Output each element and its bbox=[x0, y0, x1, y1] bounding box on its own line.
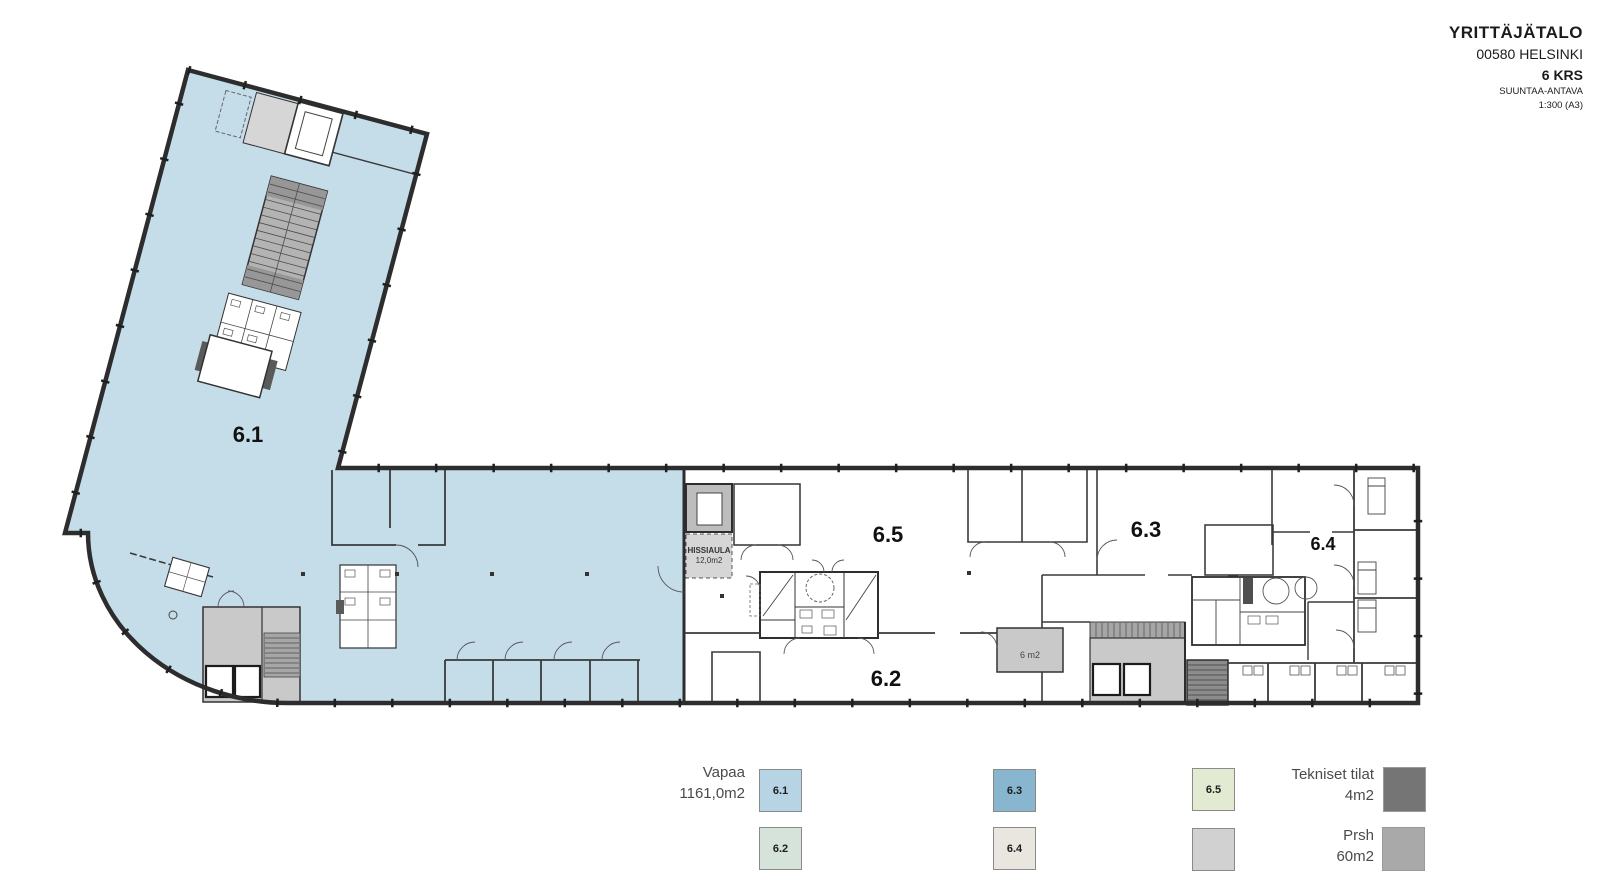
hissiaula-area: 12,0m2 bbox=[696, 556, 723, 565]
legend-prsh-label: Prsh bbox=[1240, 825, 1374, 846]
legend-swatch-tekniset bbox=[1383, 767, 1426, 812]
legend-tekniset-label: Tekniset tilat bbox=[1240, 764, 1374, 785]
hissiaula-label: HISSIAULA bbox=[687, 546, 730, 555]
duct-dark bbox=[1243, 578, 1253, 604]
meeting-room-63 bbox=[1205, 525, 1273, 575]
legend-prsh: Prsh 60m2 bbox=[1240, 825, 1374, 867]
area-label-65: 6.5 bbox=[873, 522, 904, 547]
plan-scale: 1:300 (A3) bbox=[1449, 99, 1583, 112]
legend-swatch-61: 6.1 bbox=[759, 769, 802, 812]
area-label-61: 6.1 bbox=[233, 422, 264, 447]
legend-tekniset: Tekniset tilat 4m2 bbox=[1240, 764, 1374, 806]
east-stair-run bbox=[1090, 622, 1185, 638]
legend-vapaa-label: Vapaa bbox=[600, 762, 745, 783]
legend-swatch-65-label: 6.5 bbox=[1206, 784, 1221, 796]
area-label-62: 6.2 bbox=[871, 666, 902, 691]
legend-swatch-65: 6.5 bbox=[1192, 768, 1235, 811]
hissiaula-elevator-car bbox=[697, 493, 722, 525]
elevator-shaft bbox=[1124, 664, 1150, 695]
duct-dark bbox=[336, 600, 344, 614]
legend-swatch-64-label: 6.4 bbox=[1007, 843, 1022, 855]
legend-swatch-63: 6.3 bbox=[993, 769, 1036, 812]
floor-number: 6 KRS bbox=[1449, 65, 1583, 85]
room-b bbox=[734, 484, 800, 545]
area-label-64: 6.4 bbox=[1310, 534, 1335, 554]
legend-swatch-prsh bbox=[1382, 827, 1425, 871]
legend-swatch-63-label: 6.3 bbox=[1007, 785, 1022, 797]
room-6m2-label: 6 m2 bbox=[1020, 650, 1040, 660]
central-core bbox=[760, 572, 878, 638]
floor-plan-page: HISSIAULA 12,0m2 6 m2 bbox=[0, 0, 1600, 890]
legend-vapaa-area: 1161,0m2 bbox=[600, 783, 745, 804]
legend-swatch-61-label: 6.1 bbox=[773, 785, 788, 797]
legend-swatch-62-label: 6.2 bbox=[773, 843, 788, 855]
area-label-63: 6.3 bbox=[1131, 517, 1162, 542]
building-name: YRITTÄJÄTALO bbox=[1449, 22, 1583, 44]
floor-plan-drawing: HISSIAULA 12,0m2 6 m2 bbox=[0, 0, 1600, 890]
legend-prsh-area: 60m2 bbox=[1240, 846, 1374, 867]
legend-vapaa: Vapaa 1161,0m2 bbox=[600, 762, 745, 804]
plan-note: SUUNTAA-ANTAVA bbox=[1449, 85, 1583, 99]
legend-tekniset-area: 4m2 bbox=[1240, 785, 1374, 806]
legend-swatch-62: 6.2 bbox=[759, 827, 802, 870]
west-stair bbox=[264, 633, 300, 677]
prsh-stair bbox=[1187, 660, 1228, 705]
building-address: 00580 HELSINKI bbox=[1449, 44, 1583, 65]
elevator-shaft bbox=[235, 666, 260, 697]
elevator-shaft bbox=[1093, 664, 1120, 695]
title-block: YRITTÄJÄTALO 00580 HELSINKI 6 KRS SUUNTA… bbox=[1449, 22, 1583, 112]
legend-swatch-blank bbox=[1192, 828, 1235, 871]
legend-swatch-64: 6.4 bbox=[993, 827, 1036, 870]
